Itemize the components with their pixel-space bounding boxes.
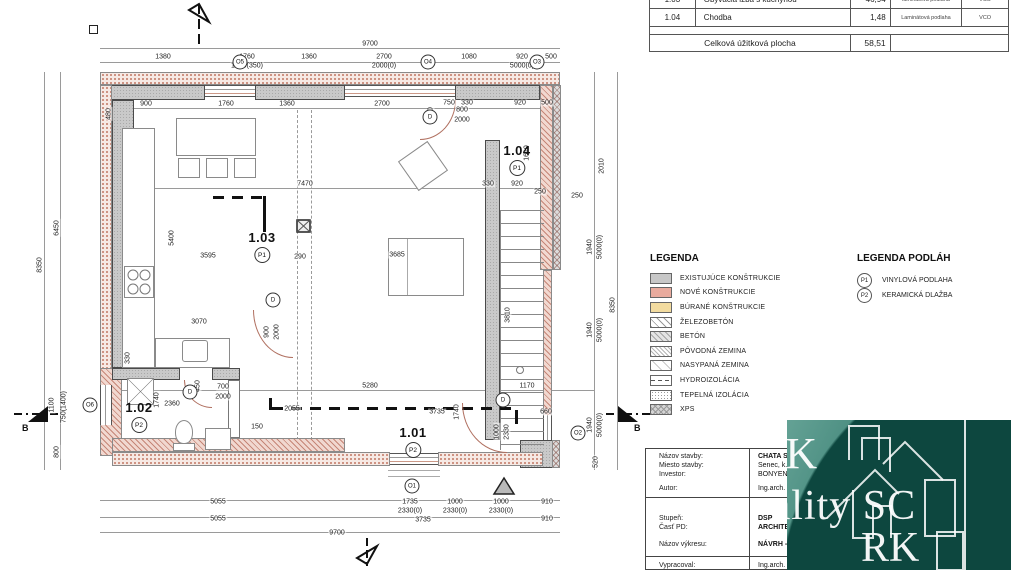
legend-item: XPS bbox=[650, 402, 845, 417]
room-code-cell: VCO bbox=[962, 9, 1008, 26]
legend-item-label: EXISTUJÚCE KONŠTRUKCIE bbox=[680, 275, 780, 282]
legend-item-label: BETÓN bbox=[680, 333, 705, 340]
room-code-cell: VCO bbox=[962, 0, 1008, 8]
field-label: Názov výkresu: bbox=[659, 541, 707, 548]
room-area-cell: 1,48 bbox=[851, 9, 891, 26]
room-floor-cell: Laminátová podlaha bbox=[891, 9, 963, 26]
legend-item-label: NOVÉ KONŠTRUKCIE bbox=[680, 289, 756, 296]
table-spacer bbox=[649, 27, 1009, 34]
legend: LEGENDA EXISTUJÚCE KONŠTRUKCIE NOVÉ KONŠ… bbox=[650, 253, 845, 417]
room-area-cell: 46,94 bbox=[851, 0, 891, 8]
legend-swatch-fill-soil bbox=[650, 360, 672, 371]
room-number: 1.01 bbox=[399, 425, 426, 440]
room-label-layer: 1.03P11.04P11.02P21.01P2 bbox=[0, 0, 645, 570]
floor-legend-label: KERAMICKÁ DLAŽBA bbox=[882, 292, 952, 299]
room-floor-tag: P2 bbox=[405, 442, 421, 458]
legend-swatch-new bbox=[650, 287, 672, 298]
legend-swatch-xps bbox=[650, 404, 672, 415]
room-name-cell: Obývacia izba s kuchyňou bbox=[696, 0, 851, 8]
total-empty-cell bbox=[891, 35, 1008, 51]
total-value: 58,51 bbox=[851, 35, 891, 51]
legend-title: LEGENDA bbox=[650, 253, 845, 264]
room-label-1.04: 1.04P1 bbox=[503, 143, 530, 176]
field-label: Miesto stavby: bbox=[659, 462, 704, 469]
room-name-cell: Chodba bbox=[696, 9, 851, 26]
legend-swatch-reinforced-concrete bbox=[650, 317, 672, 328]
legend-item: NASYPANÁ ZEMINA bbox=[650, 359, 845, 374]
room-id-cell: 1.03 bbox=[650, 0, 696, 8]
legend-item-label: PÔVODNÁ ZEMINA bbox=[680, 348, 746, 355]
legend-item-label: HYDROIZOLÁCIA bbox=[680, 377, 740, 384]
legend-item: TEPELNÁ IZOLÁCIA bbox=[650, 388, 845, 403]
legend-item: BETÓN bbox=[650, 329, 845, 344]
legend-item: NOVÉ KONŠTRUKCIE bbox=[650, 286, 845, 301]
legend-item-label: NASYPANÁ ZEMINA bbox=[680, 362, 749, 369]
watermark-text: RK bbox=[861, 524, 919, 570]
room-label-1.01: 1.01P2 bbox=[399, 425, 426, 458]
room-floor-tag: P1 bbox=[254, 247, 270, 263]
field-label: Vypracoval: bbox=[659, 562, 695, 569]
room-table: 1.03 Obývacia izba s kuchyňou 46,94 lami… bbox=[649, 0, 1009, 52]
title-block-divider bbox=[749, 449, 750, 569]
field-value: BONYEN, bbox=[758, 471, 790, 478]
field-label: Stupeň: bbox=[659, 515, 683, 522]
floor-legend-item: P1 VINYLOVÁ PODLAHA bbox=[857, 273, 1007, 288]
watermark-text: RK bbox=[787, 428, 817, 479]
floor-tag-p2: P2 bbox=[857, 288, 872, 303]
floor-plan: B B 9700138017601650(350)136027002000(0)… bbox=[0, 0, 645, 570]
legend-swatch-thermal-insulation bbox=[650, 390, 672, 401]
room-id-cell: 1.04 bbox=[650, 9, 696, 26]
room-number: 1.04 bbox=[503, 143, 530, 158]
legend-swatch-existing bbox=[650, 273, 672, 284]
legend-item-label: TEPELNÁ IZOLÁCIA bbox=[680, 392, 749, 399]
legend-item: BÚRANÉ KONŠTRUKCIE bbox=[650, 300, 845, 315]
legend-item-label: BÚRANÉ KONŠTRUKCIE bbox=[680, 304, 765, 311]
field-value: DSP bbox=[758, 515, 772, 522]
field-label: Autor: bbox=[659, 485, 678, 492]
drawing-canvas: B B 9700138017601650(350)136027002000(0)… bbox=[0, 0, 1011, 570]
legend-item: ŽELEZOBETÓN bbox=[650, 315, 845, 330]
watermark-text: Reality SC bbox=[787, 482, 916, 530]
room-label-1.03: 1.03P1 bbox=[248, 230, 275, 263]
legend-swatch-original-soil bbox=[650, 346, 672, 357]
legend-item: HYDROIZOLÁCIA bbox=[650, 373, 845, 388]
room-floor-tag: P1 bbox=[509, 160, 525, 176]
table-row: 1.04 Chodba 1,48 Laminátová podlaha VCO bbox=[649, 9, 1009, 27]
legend-swatch-concrete bbox=[650, 331, 672, 342]
floor-legend-item: P2 KERAMICKÁ DLAŽBA bbox=[857, 288, 1007, 303]
floor-legend-title: LEGENDA PODLÁH bbox=[857, 253, 1007, 264]
field-label: Názov stavby: bbox=[659, 453, 703, 460]
room-number: 1.03 bbox=[248, 230, 275, 245]
floor-legend-label: VINYLOVÁ PODLAHA bbox=[882, 277, 952, 284]
legend-item-label: ŽELEZOBETÓN bbox=[680, 319, 734, 326]
room-floor-cell: laminátová podlaha bbox=[891, 0, 963, 8]
table-total-row: Celková úžitková plocha 58,51 bbox=[649, 34, 1009, 52]
floor-tag-p1: P1 bbox=[857, 273, 872, 288]
table-row: 1.03 Obývacia izba s kuchyňou 46,94 lami… bbox=[649, 0, 1009, 9]
legend-item: PÔVODNÁ ZEMINA bbox=[650, 344, 845, 359]
watermark-logo: RK Reality SC RK bbox=[787, 420, 1011, 570]
room-number: 1.02 bbox=[125, 400, 152, 415]
room-floor-tag: P2 bbox=[131, 417, 147, 433]
legend-item-label: XPS bbox=[680, 406, 695, 413]
legend-swatch-waterproofing bbox=[650, 375, 672, 386]
total-label: Celková úžitková plocha bbox=[650, 35, 851, 51]
legend-swatch-demolished bbox=[650, 302, 672, 313]
room-label-1.02: 1.02P2 bbox=[125, 400, 152, 433]
field-label: Investor: bbox=[659, 471, 686, 478]
floor-legend: LEGENDA PODLÁH P1 VINYLOVÁ PODLAHA P2 KE… bbox=[857, 253, 1007, 303]
legend-item: EXISTUJÚCE KONŠTRUKCIE bbox=[650, 271, 845, 286]
field-label: Časť PD: bbox=[659, 524, 688, 531]
